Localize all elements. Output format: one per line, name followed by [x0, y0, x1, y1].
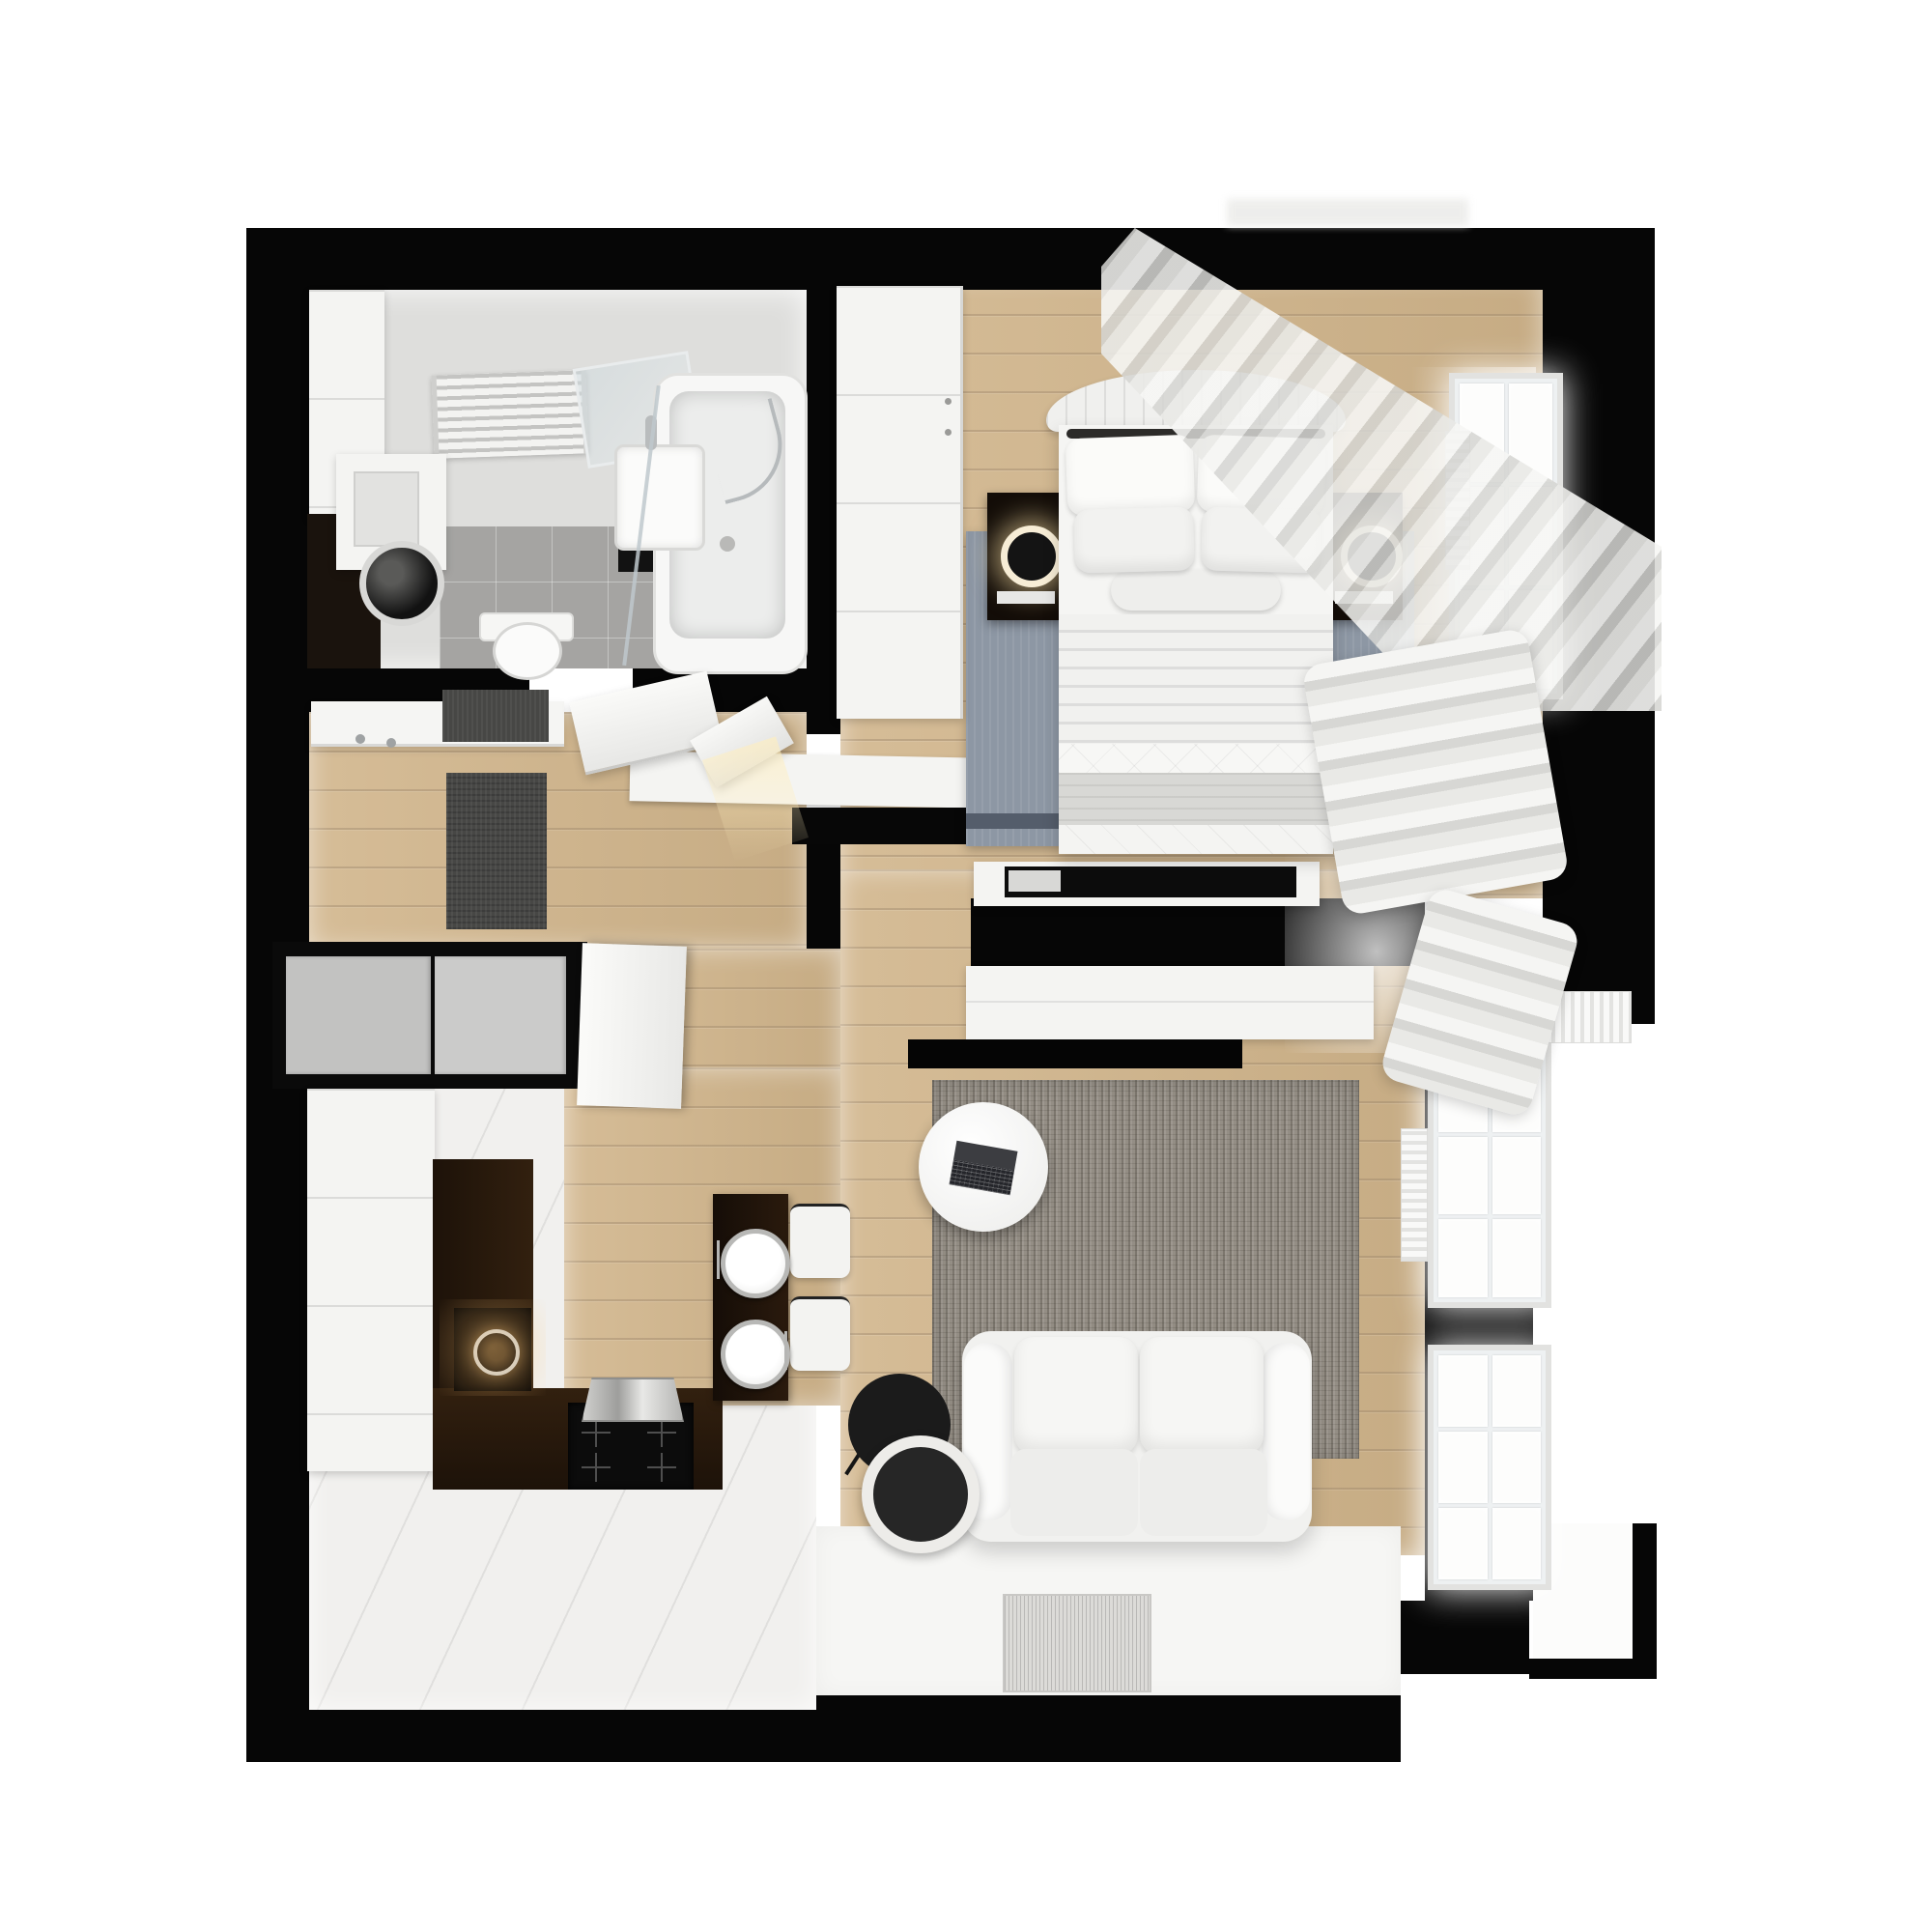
wall-top	[246, 228, 1655, 290]
living-door-mat	[1003, 1594, 1151, 1692]
extractor-hood	[582, 1378, 684, 1422]
bar-stool	[790, 1296, 850, 1371]
wardrobe-handle	[945, 398, 952, 405]
burner	[647, 1418, 676, 1447]
living-console-base-shadow	[908, 1039, 1242, 1068]
coat-hook	[355, 734, 365, 744]
toilet-bowl	[493, 622, 562, 680]
window-pane	[1438, 1508, 1488, 1579]
coat-hook	[386, 738, 396, 748]
closet-niche-frame	[272, 942, 587, 1089]
washing-machine-drum	[359, 541, 444, 626]
wall-balcony-bottom	[1529, 1659, 1657, 1679]
sofa-seat-cushion	[1140, 1449, 1267, 1536]
cutlery	[717, 1240, 720, 1279]
window-pane	[1438, 1432, 1488, 1503]
plate-setting	[721, 1320, 790, 1389]
sofa-back-cushion	[1014, 1337, 1138, 1455]
living-tv-console	[966, 966, 1374, 1039]
bed-duvet-pleats	[1059, 614, 1333, 744]
window-pane	[1492, 1508, 1542, 1579]
bedroom-curtain-pile	[1301, 627, 1570, 916]
curtain-over-wall-smudge	[1227, 199, 1468, 226]
table-lamp-glow	[1001, 526, 1063, 587]
sofa-seat-cushion	[1010, 1449, 1138, 1536]
window-pane	[1492, 1219, 1542, 1297]
closet-open-door	[577, 943, 687, 1109]
cutlery	[784, 1331, 787, 1370]
wall-balcony-side	[1633, 1523, 1657, 1679]
window-pane	[1492, 1355, 1542, 1427]
console-seam	[966, 1001, 1374, 1003]
kitchen-tall-cabinets	[307, 1089, 435, 1471]
living-radiator-inner	[1401, 1128, 1428, 1262]
floor-lamp-shade	[862, 1435, 980, 1553]
entry-mat	[446, 773, 547, 929]
kitchen-sink-glow	[440, 1299, 546, 1396]
nightstand-left	[987, 493, 1065, 620]
window-pane	[1438, 1137, 1488, 1215]
window-pane	[1492, 1432, 1542, 1503]
closet-sliding-door	[286, 956, 431, 1074]
entry-mat-upper	[442, 690, 549, 742]
bed-gray-throw	[1059, 773, 1333, 825]
washbasin	[614, 444, 705, 551]
plate-setting	[721, 1229, 790, 1298]
bed-quilt	[1059, 744, 1333, 773]
bed-bolster	[1111, 570, 1281, 611]
sofa-armrest-right	[1262, 1343, 1310, 1520]
bed-pillow-small	[1073, 506, 1195, 573]
sofa-back-cushion	[1140, 1337, 1264, 1455]
wall-bottom-right	[1401, 1601, 1529, 1674]
bed-pillow	[1065, 435, 1196, 517]
bedroom-wardrobe	[837, 286, 963, 719]
nightstand-shelf-strip	[997, 591, 1055, 604]
window-pane	[1438, 1355, 1488, 1427]
bed-hem	[1059, 825, 1333, 854]
wall-bathroom-bedroom-lower	[807, 829, 840, 949]
burner	[647, 1453, 676, 1482]
floor-plan-canvas	[0, 0, 1932, 1932]
bedroom-tv-stand	[1009, 870, 1061, 892]
living-window-lower	[1428, 1345, 1551, 1590]
sofa	[962, 1331, 1312, 1542]
bathtub-drain	[720, 536, 735, 552]
closet-sliding-door	[435, 956, 566, 1074]
burner	[582, 1418, 611, 1447]
window-pane	[1438, 1219, 1488, 1297]
window-pane	[1492, 1137, 1542, 1215]
towel-radiator	[432, 370, 589, 459]
burner	[582, 1453, 611, 1482]
wall-bathroom-bedroom-upper	[807, 228, 840, 734]
bar-stool	[790, 1204, 850, 1278]
wardrobe-handle	[945, 429, 952, 436]
washing-machine-towel	[354, 471, 419, 547]
